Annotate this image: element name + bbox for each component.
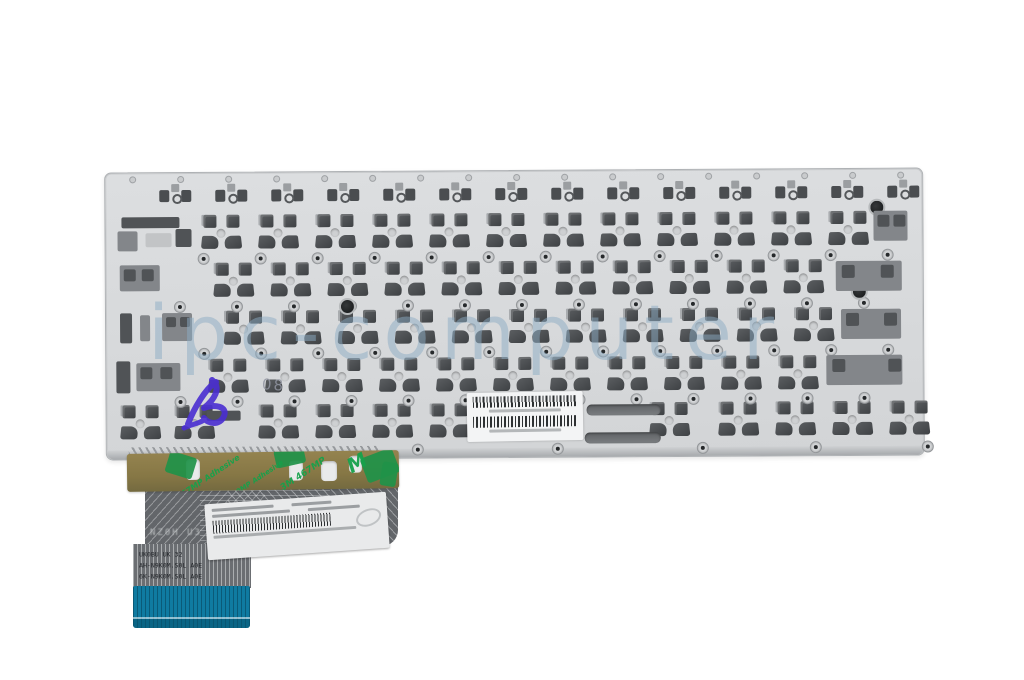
key-clip (607, 377, 625, 390)
key-clip-cluster (670, 260, 710, 296)
rivet-hole (753, 172, 760, 179)
key-clip-cluster (784, 259, 824, 295)
key-clip (855, 422, 873, 435)
plate-cutout (145, 233, 171, 247)
key-clip (630, 377, 648, 390)
key-clip (395, 235, 413, 248)
key-clip (591, 308, 604, 321)
rivet-hole (561, 174, 568, 181)
key-clip (892, 401, 905, 414)
guide-hole (343, 276, 352, 285)
key-clip (555, 282, 573, 295)
key-clip-cluster (613, 260, 653, 296)
guide-hole (786, 225, 795, 234)
key-guide (731, 181, 739, 189)
key-clip (353, 262, 366, 275)
key-guide (899, 180, 907, 188)
screw-hole (312, 347, 324, 359)
key-clip-cluster (776, 401, 816, 437)
hook-hole (844, 190, 854, 200)
key-clip (669, 281, 687, 294)
key-clip (452, 234, 470, 247)
key-guide (395, 183, 403, 191)
key-clip-cluster (486, 213, 526, 249)
key-clip (461, 188, 471, 200)
key-clip (495, 188, 505, 200)
key-clip (794, 232, 812, 245)
key-clip (679, 329, 697, 342)
key-clip (687, 377, 705, 390)
key-clip (543, 234, 561, 247)
key-clip (578, 282, 596, 295)
key-clip (438, 357, 451, 370)
key-guide (563, 182, 571, 190)
key-clip (337, 331, 355, 344)
key-clip (461, 357, 474, 370)
guide-hole (685, 274, 694, 283)
guide-hole (296, 324, 305, 333)
key-clip (372, 235, 390, 248)
key-clip-cluster (493, 357, 533, 393)
adhesive-tape: 467MP Adhesive200MP Adhesive3M 467MPM (127, 450, 400, 492)
function-key-clip-cluster (439, 182, 471, 202)
rivet-hole (225, 176, 232, 183)
screw-hole (922, 440, 934, 452)
key-clip (778, 376, 796, 389)
key-clip (397, 214, 410, 227)
key-clip (210, 359, 223, 372)
key-clip (831, 186, 841, 198)
screw-hole (630, 298, 642, 310)
function-key-clip-cluster (831, 180, 863, 200)
key-clip (801, 376, 819, 389)
plate-cutout (140, 367, 152, 379)
guide-hole (216, 229, 225, 238)
function-key-clip-cluster (775, 180, 807, 200)
key-clip (224, 236, 242, 249)
key-clip (143, 426, 161, 439)
key-clip-cluster (328, 262, 368, 298)
function-key-clip-cluster (327, 183, 359, 203)
key-clip (615, 260, 628, 273)
screw-hole (483, 251, 495, 263)
key-clip (383, 189, 393, 201)
guide-hole (793, 369, 802, 378)
key-clip-cluster (550, 357, 590, 393)
key-clip-cluster (771, 211, 811, 247)
key-guide (787, 180, 795, 188)
screw-hole (654, 250, 666, 262)
key-clip (123, 405, 136, 418)
key-guide (339, 183, 347, 191)
function-key-clip-cluster (887, 180, 919, 200)
key-clip (749, 280, 767, 293)
guide-hole (451, 371, 460, 380)
plate-cutout (116, 361, 130, 393)
key-clip-cluster (214, 263, 254, 299)
guide-hole (457, 275, 466, 284)
key-clip (729, 260, 742, 273)
key-clip (267, 358, 280, 371)
guide-hole (353, 324, 362, 333)
key-clip (629, 187, 639, 199)
function-key-clip-cluster (215, 184, 247, 204)
hook-hole (732, 191, 742, 201)
key-clip (518, 357, 531, 370)
plate-cutout (893, 215, 905, 227)
key-clip (288, 379, 306, 392)
rivet-hole (273, 175, 280, 182)
key-clip (429, 234, 447, 247)
screw-hole (768, 249, 780, 261)
key-clip (486, 234, 504, 247)
plate-cutout (142, 269, 154, 281)
key-clip (387, 262, 400, 275)
guide-hole (274, 418, 283, 427)
key-clip (260, 214, 273, 227)
screw-hole (687, 393, 699, 405)
key-clip (773, 211, 786, 224)
key-clip (146, 405, 159, 418)
rivet-hole (705, 173, 712, 180)
key-clip (293, 283, 311, 296)
key-clip-cluster (721, 355, 761, 391)
key-clip (607, 187, 617, 199)
key-clip (912, 421, 930, 434)
key-clip (306, 310, 319, 323)
key-clip (181, 190, 191, 202)
key-clip (759, 328, 777, 341)
key-clip (439, 188, 449, 200)
cable-barcode-label (204, 492, 389, 561)
spacebar-slot (587, 404, 661, 415)
key-clip (303, 331, 321, 344)
key-clip (159, 190, 169, 202)
key-clip (602, 212, 615, 225)
key-clip (648, 308, 661, 321)
key-clip (832, 422, 850, 435)
screw-hole (402, 300, 414, 312)
guide-hole (394, 372, 403, 381)
key-clip (293, 189, 303, 201)
key-clip-cluster (442, 261, 482, 297)
screw-hole (697, 442, 709, 454)
key-clip-cluster (566, 308, 606, 344)
key-clip (830, 211, 843, 224)
key-clip (819, 307, 832, 320)
guide-hole (508, 371, 517, 380)
key-clip (721, 377, 739, 390)
key-clip (273, 262, 286, 275)
key-clip (410, 262, 423, 275)
function-key-clip-cluster (383, 183, 415, 203)
key-clip-cluster (385, 262, 425, 298)
key-clip (501, 261, 514, 274)
plate-hole (339, 298, 356, 315)
key-clip (721, 402, 734, 415)
key-clip (340, 214, 353, 227)
function-key-clip-cluster (159, 184, 191, 204)
barcode (473, 415, 577, 428)
key-clip (296, 262, 309, 275)
key-clip (705, 308, 718, 321)
hook-hole (620, 191, 630, 201)
key-clip (384, 283, 402, 296)
cable-connector-tab (133, 586, 250, 628)
key-clip (600, 233, 618, 246)
function-key-clip-cluster (663, 181, 695, 201)
screw-hole (483, 346, 495, 358)
key-clip-cluster (737, 307, 777, 343)
function-key-clip-cluster (719, 181, 751, 201)
key-clip-cluster (727, 259, 767, 295)
key-clip (780, 355, 793, 368)
key-clip (261, 404, 274, 417)
key-clip (739, 212, 752, 225)
key-clip (692, 281, 710, 294)
key-clip (258, 235, 276, 248)
plate-cutout (175, 229, 191, 247)
guide-hole (736, 370, 745, 379)
key-clip (338, 425, 356, 438)
key-clip (315, 425, 333, 438)
key-clip (327, 189, 337, 201)
guide-hole (558, 227, 567, 236)
key-clip-cluster (714, 212, 754, 248)
key-clip-cluster (509, 309, 549, 345)
key-clip (280, 331, 298, 344)
guide-hole (638, 322, 647, 331)
key-clip (258, 425, 276, 438)
key-clip (493, 378, 511, 391)
key-clip (816, 328, 834, 341)
key-clip (566, 234, 584, 247)
key-clip (201, 236, 219, 249)
key-clip (317, 214, 330, 227)
key-clip (474, 330, 492, 343)
key-clip (666, 356, 679, 369)
key-clip-cluster (623, 308, 663, 344)
key-guide (507, 182, 515, 190)
pen-scribble (178, 374, 242, 432)
key-clip (851, 232, 869, 245)
plate-cutout (846, 313, 859, 326)
key-clip (622, 329, 640, 342)
key-clip (404, 358, 417, 371)
screw-hole (654, 345, 666, 357)
hook-hole (564, 192, 574, 202)
key-clip (771, 232, 789, 245)
key-clip (534, 309, 547, 322)
key-clip (746, 356, 759, 369)
key-clip (716, 212, 729, 225)
key-clip (623, 233, 641, 246)
key-clip (915, 400, 928, 413)
key-clip (249, 311, 262, 324)
key-clip (360, 331, 378, 344)
guide-hole (905, 415, 914, 424)
key-clip (281, 425, 299, 438)
guide-hole (742, 274, 751, 283)
key-clip (659, 212, 672, 225)
key-guide (451, 182, 459, 190)
rivet-hole (177, 176, 184, 183)
screw-hole (573, 299, 585, 311)
key-clip (379, 379, 397, 392)
key-clip (853, 211, 866, 224)
key-clip-cluster (436, 357, 476, 393)
key-clip (349, 189, 359, 201)
key-clip (441, 282, 459, 295)
key-clip (420, 309, 433, 322)
key-clip (271, 189, 281, 201)
key-clip-cluster (543, 213, 583, 249)
key-clip-cluster (778, 355, 818, 391)
key-clip (394, 331, 412, 344)
hook-hole (228, 194, 238, 204)
key-clip (672, 423, 690, 436)
key-clip (736, 329, 754, 342)
key-clip (290, 358, 303, 371)
key-clip-cluster (430, 403, 470, 439)
key-clip (363, 310, 376, 323)
guide-hole (571, 275, 580, 284)
key-clip (909, 186, 919, 198)
key-clip (395, 425, 413, 438)
spacebar-slot (585, 432, 661, 443)
screw-hole (402, 395, 414, 407)
key-clip (459, 378, 477, 391)
key-clip (322, 379, 340, 392)
key-clip (741, 423, 759, 436)
guide-hole (467, 323, 476, 332)
rivet-hole (129, 176, 136, 183)
screw-hole (288, 395, 300, 407)
key-clip (828, 232, 846, 245)
barcode-caption (488, 408, 561, 412)
key-clip (226, 215, 239, 228)
key-clip (675, 402, 688, 415)
plate-cutout (120, 313, 132, 343)
key-clip (327, 283, 345, 296)
key-clip-cluster (373, 404, 413, 440)
screw-hole (552, 443, 564, 455)
key-clip (464, 282, 482, 295)
key-clip (672, 260, 685, 273)
key-clip (318, 404, 331, 417)
guide-hole (136, 419, 145, 428)
key-clip (887, 186, 897, 198)
key-clip (741, 187, 751, 199)
key-clip (612, 281, 630, 294)
key-clip (239, 263, 252, 276)
screw-hole (312, 252, 324, 264)
key-clip (695, 260, 708, 273)
key-clip (454, 213, 467, 226)
key-clip (638, 260, 651, 273)
plate-cutout (842, 265, 855, 278)
function-key-clip-cluster (271, 183, 303, 203)
key-clip (246, 332, 264, 345)
key-clip (581, 261, 594, 274)
key-clip (573, 188, 583, 200)
key-clip-cluster (259, 404, 299, 440)
key-clip (270, 283, 288, 296)
key-clip-cluster (452, 309, 492, 345)
key-clip (436, 378, 454, 391)
key-guide (843, 180, 851, 188)
guide-hole (501, 227, 510, 236)
key-clip-cluster (607, 356, 647, 392)
key-clip (488, 213, 501, 226)
key-clip (762, 307, 775, 320)
key-clip (726, 281, 744, 294)
plate-cutout (124, 269, 136, 281)
key-clip (223, 332, 241, 345)
key-clip-cluster (201, 215, 241, 251)
key-clip-cluster (828, 211, 868, 247)
key-clip-cluster (258, 214, 298, 250)
barcode-caption (489, 428, 562, 432)
key-clip (558, 261, 571, 274)
key-clip (120, 426, 138, 439)
key-clip (797, 186, 807, 198)
key-clip (809, 259, 822, 272)
key-clip-cluster (224, 311, 264, 347)
screw-hole (426, 251, 438, 263)
key-clip (407, 283, 425, 296)
key-clip-cluster (429, 213, 469, 249)
key-clip (405, 189, 415, 201)
guide-hole (239, 325, 248, 334)
guide-hole (729, 226, 738, 235)
guide-hole (286, 276, 295, 285)
key-clip (835, 401, 848, 414)
plate-cutout (884, 313, 897, 326)
key-clip (498, 282, 516, 295)
screw-hole (174, 301, 186, 313)
function-key-clip-cluster (551, 182, 583, 202)
screw-hole (711, 250, 723, 262)
plate-cutout (166, 317, 176, 327)
guide-hole (514, 275, 523, 284)
guide-hole (273, 228, 282, 237)
plate-cutout (881, 265, 894, 278)
screw-hole (711, 345, 723, 357)
key-clip (531, 330, 549, 343)
cable-faint-print: NZ0H U3 (150, 528, 202, 538)
screw-hole (540, 251, 552, 263)
handwritten-mark: 08 (261, 375, 285, 395)
rivet-hole (657, 173, 664, 180)
label-text (308, 505, 360, 512)
plate-cutout (877, 215, 889, 227)
guide-hole (337, 372, 346, 381)
key-clip (775, 186, 785, 198)
key-clip (588, 329, 606, 342)
key-clip (685, 187, 695, 199)
key-clip (372, 425, 390, 438)
key-clip (573, 378, 591, 391)
key-clip-cluster (664, 356, 704, 392)
screw-hole (255, 348, 267, 360)
hook-hole (284, 193, 294, 203)
screw-hole (426, 346, 438, 358)
rivet-hole (417, 175, 424, 182)
key-clip (417, 330, 435, 343)
key-clip (216, 263, 229, 276)
key-clip (719, 187, 729, 199)
